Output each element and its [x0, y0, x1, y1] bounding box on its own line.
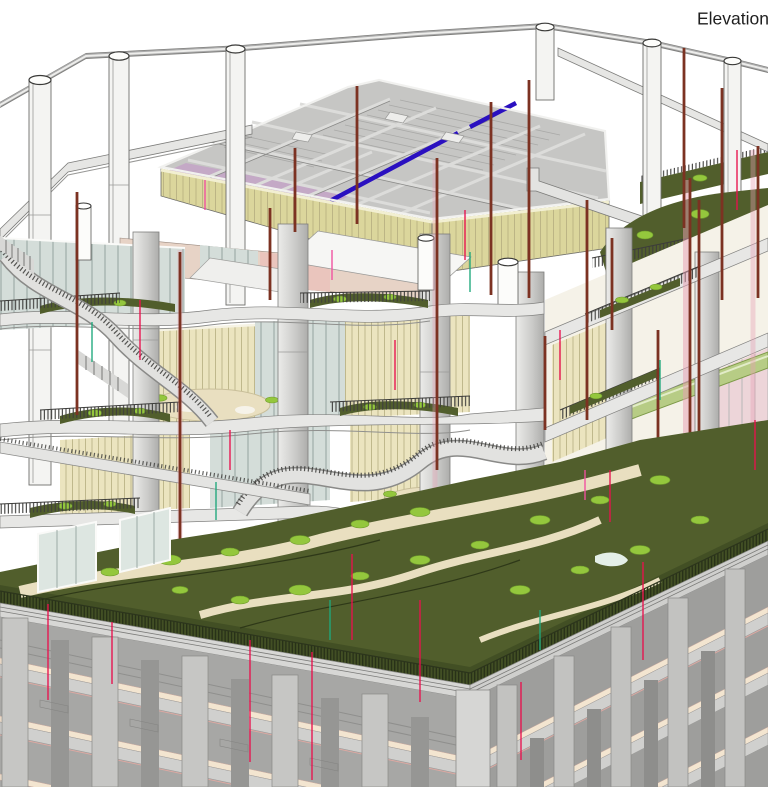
view-label: Elevation: [697, 9, 768, 29]
elevation-3d-view: Elevation: [0, 0, 768, 787]
small-column: [418, 235, 434, 290]
building-render: Elevation: [0, 0, 768, 787]
perimeter-column-rear: [536, 23, 554, 100]
corner-column: [456, 690, 490, 787]
small-column: [498, 258, 518, 310]
